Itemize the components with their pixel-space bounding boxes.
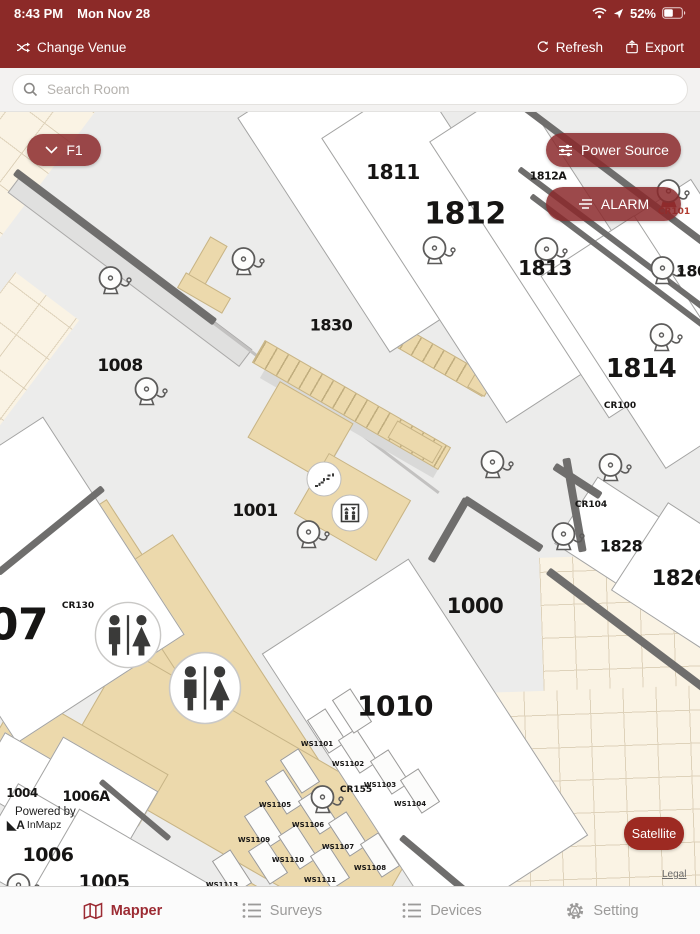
- alarm-bell-icon[interactable]: [549, 521, 585, 554]
- room-label-1811: 1811: [366, 160, 420, 184]
- map-icon: [82, 901, 103, 921]
- stairs-icon[interactable]: [306, 461, 342, 497]
- workstation-label-WS1107: WS1107: [322, 843, 354, 851]
- device-label-CR130: CR130: [62, 601, 94, 611]
- wifi-icon: [592, 7, 607, 19]
- alarm-button[interactable]: ALARM: [546, 187, 681, 221]
- workstation-label-WS1108: WS1108: [354, 864, 386, 872]
- workstation-label-WS1102: WS1102: [332, 760, 364, 768]
- status-time: 8:43 PM: [14, 6, 63, 21]
- floor-label: F1: [66, 142, 82, 158]
- tab-mapper-label: Mapper: [111, 903, 163, 919]
- tab-mapper[interactable]: Mapper: [42, 901, 202, 921]
- room-label-1000: 1000: [447, 594, 503, 618]
- room-label-1812A: 1812A: [530, 170, 567, 183]
- room-label-1001: 1001: [232, 501, 277, 521]
- power-source-label: Power Source: [581, 142, 669, 158]
- change-venue-label: Change Venue: [37, 40, 126, 55]
- alarm-bell-icon[interactable]: [420, 235, 456, 268]
- room-label-1006: 1006: [23, 844, 74, 866]
- floor-selector-button[interactable]: F1: [27, 134, 101, 166]
- refresh-icon: [536, 40, 550, 54]
- zigzag-wall: [462, 496, 544, 553]
- room-label-1814: 1814: [606, 354, 676, 384]
- refresh-label: Refresh: [556, 40, 603, 55]
- chevron-down-icon: [45, 146, 58, 154]
- sliders-icon: [558, 144, 573, 157]
- tab-devices[interactable]: Devices: [362, 902, 522, 919]
- filter-lines-icon: [578, 198, 593, 210]
- room-label-1008: 1008: [97, 356, 142, 376]
- battery-percent: 52%: [630, 6, 656, 21]
- zigzag-wall: [428, 497, 471, 563]
- room-label-1813: 1813: [518, 256, 572, 280]
- tab-surveys[interactable]: Surveys: [202, 902, 362, 919]
- workstation-label-WS1105: WS1105: [259, 801, 291, 809]
- map-attribution: Powered by ◣A InMapz: [0, 806, 76, 832]
- list-icon: [402, 902, 422, 919]
- tab-devices-label: Devices: [430, 903, 482, 919]
- status-date: Mon Nov 28: [77, 6, 150, 21]
- floor-map[interactable]: 181118121812A181318021814183010081001100…: [0, 112, 700, 886]
- shuffle-icon: [16, 41, 31, 54]
- workstation-label-WS1111: WS1111: [304, 876, 336, 884]
- status-bar: 8:43 PM Mon Nov 28 52%: [0, 0, 700, 26]
- tab-surveys-label: Surveys: [270, 903, 322, 919]
- satellite-toggle-button[interactable]: Satellite: [624, 817, 684, 850]
- room-label-1828: 1828: [600, 537, 643, 556]
- export-button[interactable]: Export: [625, 40, 684, 55]
- powered-by-text: Powered by: [15, 806, 76, 818]
- workstation-label-WS1110: WS1110: [272, 856, 304, 864]
- room-label-1812: 1812: [424, 197, 506, 232]
- power-source-button[interactable]: Power Source: [546, 133, 681, 167]
- nav-bar: Change Venue Refresh Export: [0, 26, 700, 68]
- search-icon: [23, 82, 38, 97]
- room-label-1006A: 1006A: [62, 789, 109, 805]
- alarm-bell-icon[interactable]: [647, 322, 683, 355]
- workstation-label-WS1101: WS1101: [301, 740, 333, 748]
- list-icon: [242, 902, 262, 919]
- alarm-bell-icon[interactable]: [308, 784, 344, 817]
- alarm-bell-icon[interactable]: [4, 872, 40, 887]
- search-pill[interactable]: [12, 74, 688, 105]
- room-label-1802: 1802: [676, 262, 700, 281]
- location-arrow-icon: [613, 8, 624, 19]
- workstation-label-WS1104: WS1104: [394, 800, 426, 808]
- inmapz-logo: ◣A: [7, 818, 25, 832]
- export-icon: [625, 40, 639, 54]
- alarm-bell-icon[interactable]: [229, 246, 265, 279]
- restroom-icon[interactable]: [94, 601, 162, 669]
- room-label-1004: 1004: [6, 786, 37, 800]
- room-label-1005: 1005: [79, 871, 130, 886]
- room-label-1826: 1826: [652, 566, 700, 590]
- workstation-label-WS1109: WS1109: [238, 836, 270, 844]
- tab-bar: Mapper Surveys Devices Setting: [0, 886, 700, 934]
- workstation-label-WS1106: WS1106: [292, 821, 324, 829]
- search-bar-area: [0, 68, 700, 112]
- change-venue-button[interactable]: Change Venue: [16, 40, 126, 55]
- device-label-CR100: CR100: [604, 401, 636, 411]
- elevator-icon[interactable]: [331, 494, 369, 532]
- tab-setting-label: Setting: [593, 903, 638, 919]
- restroom-icon[interactable]: [168, 651, 242, 725]
- room-label-07: 07: [0, 600, 48, 651]
- alarm-bell-icon[interactable]: [596, 452, 632, 485]
- alarm-bell-icon[interactable]: [294, 519, 330, 552]
- satellite-label: Satellite: [632, 827, 676, 841]
- legal-link[interactable]: Legal: [662, 869, 686, 880]
- room-label-1830: 1830: [310, 316, 353, 335]
- export-label: Export: [645, 40, 684, 55]
- workstation-label-WS1103: WS1103: [364, 781, 396, 789]
- tab-setting[interactable]: Setting: [522, 901, 682, 921]
- gear-icon: [565, 901, 585, 921]
- alarm-label: ALARM: [601, 196, 649, 212]
- alarm-bell-icon[interactable]: [478, 449, 514, 482]
- alarm-bell-icon[interactable]: [132, 376, 168, 409]
- refresh-button[interactable]: Refresh: [536, 40, 603, 55]
- device-label-CR104: CR104: [575, 500, 607, 510]
- alarm-bell-icon[interactable]: [96, 265, 132, 298]
- battery-icon: [662, 7, 686, 19]
- inmapz-text: InMapz: [27, 819, 61, 831]
- room-label-1010: 1010: [357, 690, 433, 723]
- search-input[interactable]: [45, 81, 677, 98]
